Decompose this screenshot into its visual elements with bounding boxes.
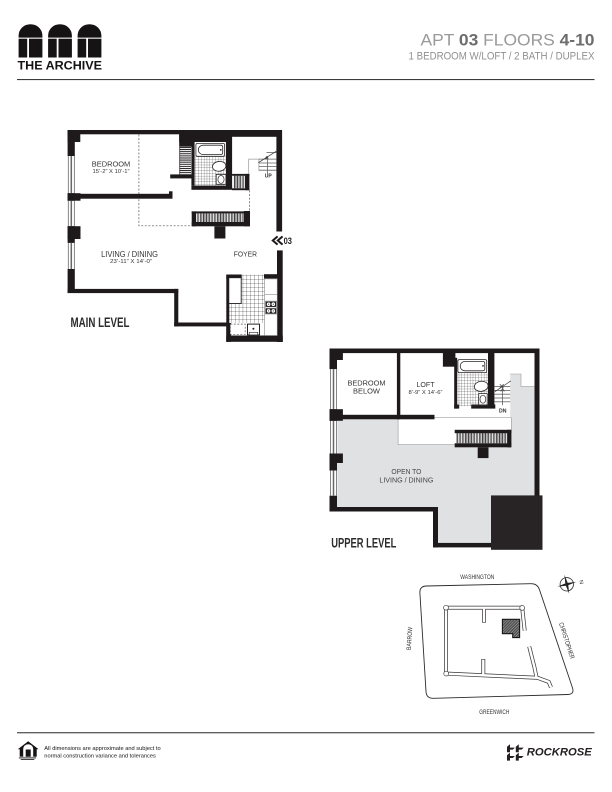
svg-text:All dimensions are approximate: All dimensions are approximate and subje… <box>44 746 160 752</box>
svg-text:UPPER LEVEL: UPPER LEVEL <box>331 536 396 552</box>
svg-text:BELOW: BELOW <box>353 386 380 395</box>
svg-text:8’-9” X 14’-6”: 8’-9” X 14’-6” <box>409 390 443 396</box>
svg-text:FOYER: FOYER <box>234 250 257 259</box>
svg-text:1 BEDROOM W/LOFT / 2 BATH / DU: 1 BEDROOM W/LOFT / 2 BATH / DUPLEX <box>409 51 595 63</box>
svg-text:15’-2” X 10’-1”: 15’-2” X 10’-1” <box>93 169 130 175</box>
svg-text:APT 03 FLOORS 4-10: APT 03 FLOORS 4-10 <box>421 30 595 49</box>
svg-text:DN: DN <box>499 409 507 415</box>
svg-text:BEDROOM: BEDROOM <box>92 160 131 169</box>
svg-text:23’-11” X 14’-0”: 23’-11” X 14’-0” <box>110 259 152 265</box>
svg-text:UP: UP <box>265 174 273 180</box>
svg-text:LOFT: LOFT <box>417 380 435 389</box>
svg-text:THE ARCHIVE: THE ARCHIVE <box>18 61 103 73</box>
svg-text:LIVING / DINING: LIVING / DINING <box>101 250 158 259</box>
svg-text:normal construction variance a: normal construction variance and toleran… <box>44 754 156 760</box>
svg-text:WASHINGTON: WASHINGTON <box>460 574 494 581</box>
svg-text:GREENWICH: GREENWICH <box>479 709 509 716</box>
svg-text:03: 03 <box>284 236 292 246</box>
svg-text:MAIN LEVEL: MAIN LEVEL <box>71 315 130 331</box>
svg-text:ROCKROSE: ROCKROSE <box>527 746 593 758</box>
svg-text:LIVING / DINING: LIVING / DINING <box>379 475 433 484</box>
